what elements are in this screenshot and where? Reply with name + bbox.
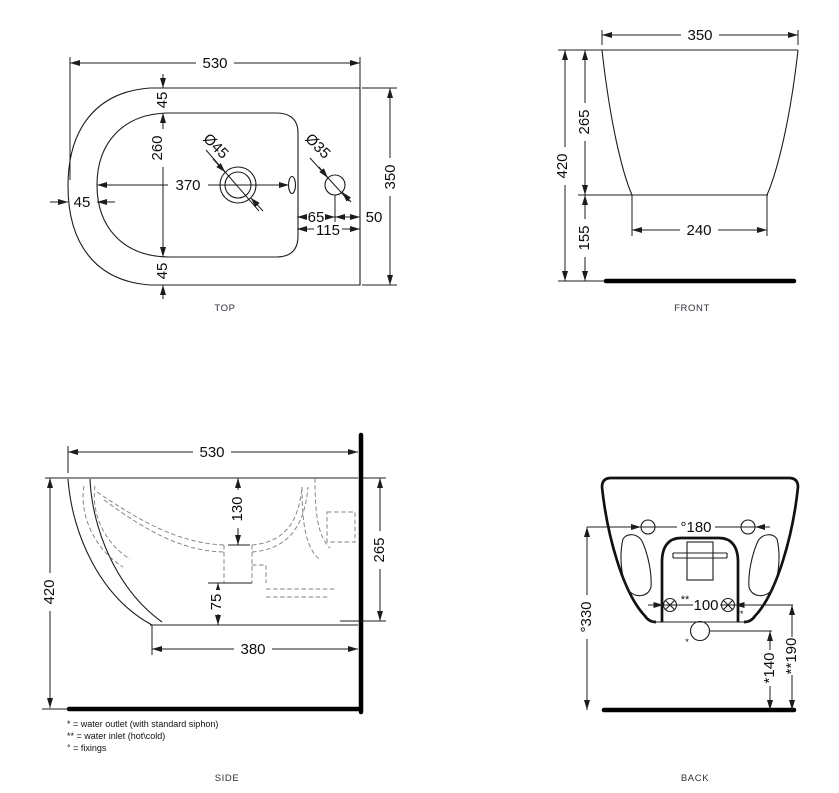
- dim-top-overall-width: 350: [382, 164, 399, 189]
- dim-front-overall-width: 350: [687, 27, 712, 44]
- water-outlet: [691, 622, 710, 641]
- overflow-slot: [289, 177, 296, 194]
- bidet-outer-outline: [68, 88, 360, 285]
- fixing-pocket: [327, 512, 355, 542]
- front-body-right-side: [767, 50, 798, 195]
- dim-back-inlets-height: **190: [783, 638, 800, 675]
- legend-fixings: ° = fixings: [67, 743, 107, 753]
- dim-side-base-length: 380: [240, 641, 265, 658]
- top-view-caption: TOP: [214, 303, 235, 314]
- legend-water-outlet: * = water outlet (with standard siphon): [67, 719, 218, 729]
- dim-top-tap-zone: 115: [316, 222, 340, 239]
- legend-water-inlet: ** = water inlet (hot\cold): [67, 731, 165, 741]
- dim-side-bowl-depth: 130: [229, 496, 246, 521]
- top-view-outlines: [68, 88, 360, 285]
- side-view: 530 420 265 130 75 380 * = water outlet …: [41, 435, 388, 784]
- dim-side-body-height: 265: [371, 537, 388, 562]
- dim-front-body-height: 265: [576, 109, 593, 134]
- dim-top-rim-inset-front: 45: [74, 194, 91, 211]
- front-view-dimension-lines: [565, 30, 798, 281]
- legend: * = water outlet (with standard siphon) …: [67, 719, 218, 753]
- dim-top-rim-inset-top: 45: [154, 92, 171, 109]
- back-view: °180 ** 100 ** * °330 *140 **190 BACK: [578, 478, 800, 784]
- front-view-outlines: [558, 50, 798, 281]
- technical-drawing-canvas: 530 45 260 370 45 45 Ø45 Ø35 65 50 115 3…: [0, 0, 839, 793]
- dim-top-drain-center: 370: [175, 177, 200, 194]
- outlet-mark: *: [685, 637, 689, 647]
- dim-top-tap-to-back: 50: [366, 209, 383, 226]
- dim-top-rim-inset-bottom: 45: [154, 263, 171, 280]
- dim-front-mounting-height: 420: [554, 153, 571, 178]
- inlets-mark: **: [681, 594, 690, 606]
- dim-front-base-width: 240: [686, 222, 711, 239]
- dim-back-inlets-spacing: 100: [693, 597, 718, 614]
- front-body-left-side: [602, 50, 632, 195]
- side-view-hidden-detail: [83, 478, 355, 597]
- inlets-sub-mark: **: [736, 609, 744, 619]
- side-front-profile-inner: [90, 479, 162, 622]
- dim-side-outlet-drop: 75: [208, 594, 225, 611]
- dim-back-outlet-height: *140: [761, 653, 778, 684]
- drain-channel: [687, 542, 713, 580]
- dim-top-overall-length: 530: [202, 55, 227, 72]
- front-view-caption: FRONT: [674, 303, 710, 314]
- technical-drawing-page: 530 45 260 370 45 45 Ø45 Ø35 65 50 115 3…: [0, 0, 839, 793]
- dim-top-inner-width: 260: [149, 135, 166, 160]
- dim-side-overall-length: 530: [199, 444, 224, 461]
- front-view: 350 420 265 155 240 FRONT: [554, 27, 798, 314]
- back-view-caption: BACK: [681, 773, 709, 784]
- side-view-outlines: [42, 435, 361, 712]
- top-view-dimension-lines: [50, 57, 397, 299]
- front-view-dimension-labels: 350 420 265 155 240: [554, 27, 719, 257]
- top-view: 530 45 260 370 45 45 Ø45 Ø35 65 50 115 3…: [50, 55, 399, 314]
- dim-back-fixings-height: °330: [578, 601, 595, 632]
- dim-side-mounting-height: 420: [41, 579, 58, 604]
- dim-back-fixings-spacing: °180: [680, 519, 711, 536]
- dim-front-clearance-height: 155: [576, 225, 593, 250]
- side-view-caption: SIDE: [215, 773, 240, 784]
